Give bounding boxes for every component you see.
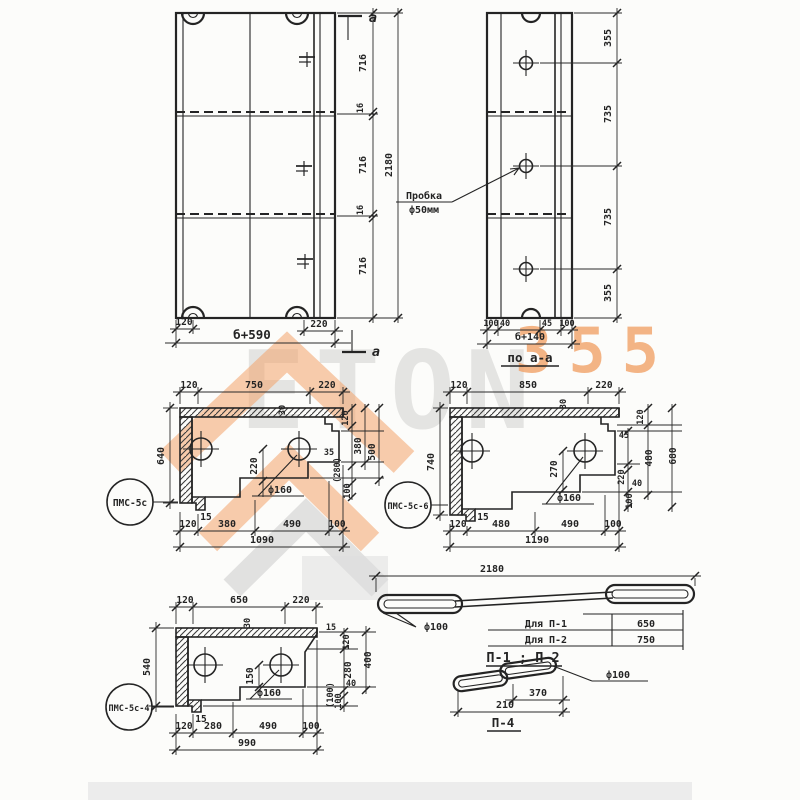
dim-label: 650 bbox=[230, 595, 248, 606]
dim-label: 220 bbox=[318, 380, 335, 391]
dim-label: 40 bbox=[500, 319, 510, 329]
p1-label-bubble: ПМС-5с bbox=[107, 479, 178, 525]
dim-label: 100 bbox=[328, 519, 345, 530]
dim-label: 1090 bbox=[250, 535, 274, 546]
dim-label: 220 bbox=[292, 595, 309, 606]
item-mark-label: ПМС-5с bbox=[113, 498, 147, 509]
dim-label: 1190 bbox=[525, 535, 549, 546]
dim-label: 45 bbox=[619, 431, 629, 441]
dim-label: 40 bbox=[346, 679, 356, 689]
plan-right-dim-chain: 716 16 716 16 716 2180 bbox=[337, 8, 403, 323]
lifting-loop-icon bbox=[182, 13, 308, 318]
dim-label: 990 bbox=[238, 738, 256, 749]
dim-label: 120 bbox=[179, 519, 196, 530]
dim-label: 280 bbox=[343, 661, 354, 678]
dim-label: 280 bbox=[204, 721, 222, 732]
dim-label: 100 bbox=[302, 721, 319, 732]
dia-leader bbox=[383, 613, 416, 627]
table-row-label: Для П-1 bbox=[525, 619, 567, 630]
profile-pms-5s-4: ф160 150 30 120 650 220 540 15 120 280 (… bbox=[106, 595, 376, 755]
plug-hole-icon bbox=[513, 153, 539, 179]
hole-dia-label: ф160 bbox=[268, 484, 292, 496]
table-row-value: 750 bbox=[637, 635, 655, 646]
dim-label: 120 bbox=[636, 409, 646, 424]
dim-label: 380 bbox=[353, 437, 364, 454]
item-mark-label: ПМС-5с-6 bbox=[388, 502, 429, 512]
dim-label: 30 bbox=[278, 405, 288, 415]
dim-label: 150 bbox=[245, 667, 256, 684]
panel-plan-view: a a 716 16 716 16 716 2180 120 б+590 bbox=[165, 8, 403, 360]
dim-label: 716 bbox=[358, 156, 369, 174]
hole-mark-icon bbox=[567, 433, 603, 469]
loop-notch-icon bbox=[522, 13, 540, 22]
dim-label: 680 bbox=[668, 447, 679, 464]
dim-label: 220 bbox=[595, 380, 612, 391]
loop-length-table: Для П-1 650 Для П-2 750 bbox=[488, 610, 683, 650]
p3-label-bubble: ПМС-5с-4 bbox=[106, 684, 174, 730]
dim-label: 540 bbox=[142, 658, 153, 676]
rebar-mark-icon bbox=[296, 161, 312, 176]
p3-bottom-dim-chain: 15 120 280 490 100 990 bbox=[169, 640, 324, 755]
dim-label: 100 bbox=[343, 483, 353, 498]
dim-label: 716 bbox=[358, 54, 369, 72]
dim-label: 735 bbox=[603, 105, 614, 123]
plug-hole-icon bbox=[513, 256, 539, 282]
dim-label: 750 bbox=[245, 380, 263, 391]
dim-label: 270 bbox=[549, 460, 560, 477]
scanned-drawing-sheet: ETON 355 a a 716 16 716 bbox=[0, 0, 800, 800]
dim-label: 2180 bbox=[480, 564, 504, 575]
dim-label: 355 bbox=[603, 284, 614, 302]
dim-label: 15 bbox=[200, 512, 212, 523]
dim-label: 15 bbox=[477, 512, 489, 523]
dim-label: 220 bbox=[249, 457, 260, 474]
dim-label: 490 bbox=[283, 519, 301, 530]
dim-label: 16 bbox=[356, 103, 366, 113]
dim-label: 100 bbox=[559, 319, 574, 329]
dim-label: 220 bbox=[310, 319, 327, 330]
dim-label: 30 bbox=[559, 399, 569, 409]
dim-label: 100 bbox=[625, 493, 635, 508]
dim-label: 2180 bbox=[384, 153, 395, 177]
p2-label-bubble: ПМС-5с-6 bbox=[385, 482, 448, 528]
dim-label: 120 bbox=[450, 380, 467, 391]
dim-label: 120 bbox=[175, 721, 192, 732]
dim-label: 15 bbox=[326, 623, 336, 633]
dim-label: 120 bbox=[180, 380, 197, 391]
dim-label: 355 bbox=[603, 29, 614, 47]
plug-label-line2: ф50мм bbox=[409, 204, 439, 216]
dim-label: 100 bbox=[604, 519, 621, 530]
bar-dia-label: ф100 bbox=[424, 621, 448, 633]
dim-label: 120 bbox=[449, 519, 466, 530]
dim-label: 716 bbox=[358, 257, 369, 275]
hole-mark-icon bbox=[263, 647, 299, 683]
plug-hole-icon bbox=[513, 50, 539, 76]
dim-label: б+140 bbox=[515, 331, 545, 343]
loop-detail-p4: ф100 370 210 П-4 bbox=[450, 657, 648, 731]
dim-label: 100 bbox=[483, 319, 498, 329]
dim-label: б+590 bbox=[233, 327, 271, 342]
dim-label: (280) bbox=[333, 457, 343, 483]
dim-label: 35 bbox=[324, 448, 334, 458]
loop-end-icon bbox=[612, 590, 688, 598]
dim-label: 480 bbox=[492, 519, 510, 530]
dim-label: 740 bbox=[426, 453, 437, 471]
dim-label: 120 bbox=[342, 634, 352, 649]
dim-label: 490 bbox=[259, 721, 277, 732]
loop-detail-p1-p2: 2180 ф100 Для П-1 650 Для П-2 750 П-1 ; … bbox=[369, 564, 701, 666]
table-row-label: Для П-2 bbox=[525, 635, 567, 646]
section-letter: a bbox=[372, 344, 380, 360]
drawing-canvas: ETON 355 a a 716 16 716 bbox=[0, 0, 800, 800]
detail-caption: П-4 bbox=[492, 715, 515, 730]
dim-label: 220 bbox=[617, 469, 627, 484]
dim-label: 120 bbox=[175, 317, 192, 328]
rebar-mark-icon bbox=[299, 52, 315, 67]
hole-dia-label: ф160 bbox=[557, 492, 581, 504]
dim-label: 490 bbox=[561, 519, 579, 530]
table-row-value: 650 bbox=[637, 619, 655, 630]
dim-label: 850 bbox=[519, 380, 537, 391]
hole-dia-label: ф160 bbox=[257, 687, 281, 699]
dim-label: 480 bbox=[644, 449, 655, 466]
loop-end-icon bbox=[384, 600, 456, 608]
scan-band bbox=[88, 782, 692, 800]
dim-label: 380 bbox=[218, 519, 236, 530]
dim-label: 210 bbox=[496, 700, 514, 711]
p3-left-dim: 540 bbox=[142, 622, 174, 712]
dim-label: 120 bbox=[176, 595, 193, 606]
loop-end-icon bbox=[606, 585, 694, 603]
hole-mark-icon bbox=[187, 647, 223, 683]
dim-label: 120 bbox=[341, 410, 351, 425]
section-right-dim-chain: 355 735 735 355 bbox=[540, 8, 622, 323]
view-caption: по а-а bbox=[507, 350, 552, 365]
item-mark-label: ПМС-5с-4 bbox=[109, 704, 150, 714]
rebar-mark-icon bbox=[297, 254, 313, 269]
dim-label: 30 bbox=[243, 618, 253, 628]
plug-label-line1: Пробка bbox=[406, 190, 442, 202]
dim-label: 45 bbox=[542, 319, 552, 329]
logo-block bbox=[302, 556, 388, 600]
dim-label: 40 bbox=[632, 479, 642, 489]
dim-label: 640 bbox=[156, 447, 167, 465]
dim-label: 400 bbox=[363, 651, 374, 668]
dim-label: 500 bbox=[367, 443, 378, 460]
p2-right-dim-chains: 120 45 480 220 40 100 680 bbox=[582, 404, 682, 512]
dim-label: 370 bbox=[529, 688, 547, 699]
bar-dia-label: ф100 bbox=[606, 669, 630, 681]
dim-label: 100 bbox=[334, 693, 344, 708]
loop-end-icon bbox=[378, 595, 462, 613]
dim-label: 16 bbox=[356, 205, 366, 215]
panel-section-view: Пробка ф50мм 355 735 735 355 100 40 45 1… bbox=[396, 8, 622, 366]
dim-label: 735 bbox=[603, 208, 614, 226]
